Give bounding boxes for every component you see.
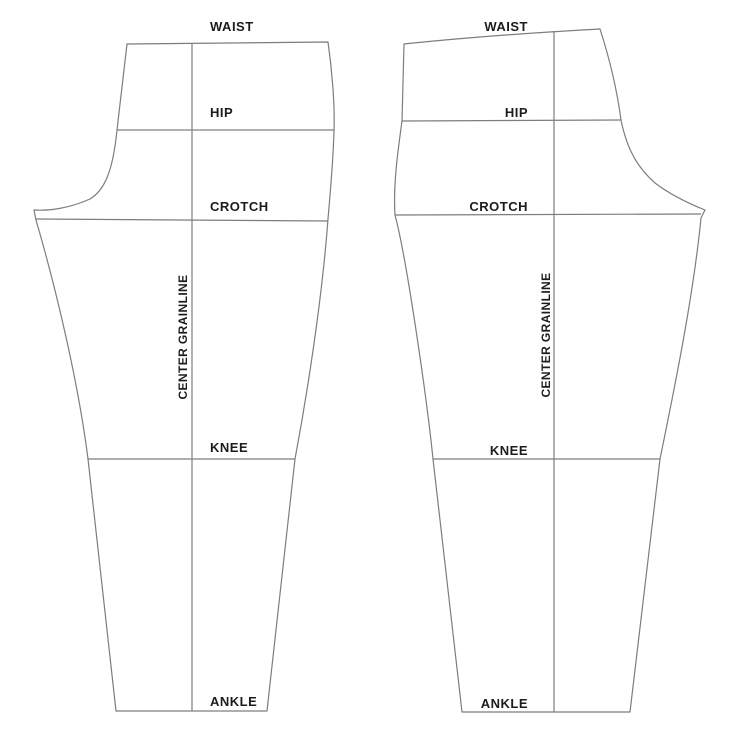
front-grainline-label: CENTER GRAINLINE [177, 274, 189, 399]
front-knee-label: KNEE [210, 441, 248, 454]
pattern-diagram: WAIST HIP CROTCH KNEE ANKLE CENTER GRAIN… [0, 0, 736, 736]
back-ankle-label: ANKLE [481, 697, 528, 710]
back-knee-label: KNEE [490, 444, 528, 457]
back-crotch-label: CROTCH [469, 200, 528, 213]
front-ankle-label: ANKLE [210, 695, 257, 708]
back-grainline-label: CENTER GRAINLINE [540, 272, 552, 397]
front-hip-label: HIP [210, 106, 233, 119]
front-crotch-label: CROTCH [210, 200, 269, 213]
back-hip-label: HIP [505, 106, 528, 119]
back-waist-label: WAIST [484, 20, 528, 33]
front-waist-label: WAIST [210, 20, 254, 33]
pattern-canvas [0, 0, 736, 736]
